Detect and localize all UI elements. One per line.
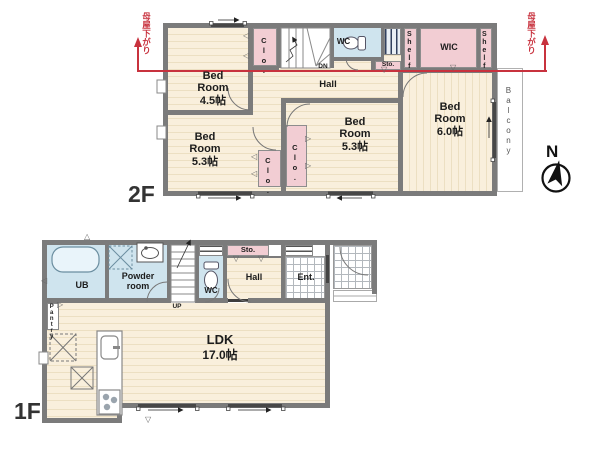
- f1-wall-nook-right: [117, 403, 122, 423]
- f1-wall-left: [42, 240, 47, 423]
- bedroom-b-name: Bed Room: [189, 131, 220, 155]
- f2-wall-right: [492, 23, 497, 196]
- bedroom-b-size: 5.3帖: [192, 156, 218, 168]
- bedroom-a-size: 4.5帖: [200, 95, 226, 107]
- f1-wall: [167, 245, 171, 302]
- roof-note-right: 母屋下がり: [527, 12, 536, 55]
- f2-wall: [398, 71, 403, 191]
- shelf-right-label: Shelf: [480, 31, 488, 71]
- floor-plan: Balcony Bed Room 4.5帖 Bed Room 5.3帖 Bed …: [0, 0, 600, 453]
- porch-wall-right: [372, 240, 377, 294]
- f2-wall: [277, 28, 281, 68]
- f1-wall: [105, 245, 109, 302]
- ldk-name: LDK: [207, 332, 234, 347]
- f1-wall-nook-bottom: [42, 418, 122, 423]
- clo-mid-label: Clo.: [290, 143, 298, 183]
- sliding-door-hall-ldk: [228, 299, 248, 302]
- door-flap-icon: ◁: [251, 170, 257, 178]
- door-flap-icon: ▽: [258, 255, 264, 263]
- f2-wall-bottom: [163, 191, 497, 196]
- door-flap-icon: ◁: [251, 153, 257, 161]
- porch-wall-top: [330, 240, 377, 245]
- roof-note-left: 母屋下がり: [142, 12, 151, 55]
- compass-north-label: N: [546, 142, 558, 161]
- door-flap-icon: ▽: [381, 66, 387, 74]
- staircase-1f: [171, 241, 195, 302]
- door-flap-icon: ◁: [41, 277, 47, 285]
- balcony-label: Balcony: [503, 86, 512, 156]
- vent-icon: △: [84, 233, 90, 241]
- f2-wall: [281, 98, 403, 103]
- floor2-label: 2F: [128, 182, 155, 208]
- door-flap-icon: ▽: [233, 255, 239, 263]
- shelf-above-entrance: [285, 245, 313, 256]
- roof-slope-arrow-left-head: [134, 37, 142, 47]
- roof-slope-arrow-left-shaft: [137, 46, 139, 71]
- bedroom-d-size: 6.0帖: [437, 126, 463, 138]
- ub-label: UB: [70, 280, 94, 290]
- ldk-flooring-nook: [47, 403, 117, 418]
- up-label: UP: [167, 303, 187, 310]
- ldk-label: LDK 17.0帖: [190, 333, 250, 362]
- f1-wall: [248, 298, 330, 303]
- bedroom-c-label: Bed Room 5.3帖: [331, 116, 379, 153]
- door-flap-icon: ◁: [243, 52, 249, 60]
- bedroom-d-name: Bed Room: [434, 101, 465, 125]
- bath-ub-room: [47, 245, 105, 302]
- f1-wall: [195, 298, 228, 303]
- door-flap-icon: ▽: [450, 64, 456, 72]
- sto-2f-label: Sto.: [376, 61, 400, 68]
- powder-room-label: Powder room: [115, 271, 161, 291]
- wc-2f-label: WC: [335, 38, 352, 47]
- bedroom-b-label: Bed Room 5.3帖: [181, 131, 229, 168]
- wc-1f-label: WC: [202, 287, 220, 296]
- bedroom-a-label: Bed Room 4.5帖: [189, 70, 237, 107]
- dn-label: DN: [313, 63, 333, 70]
- porch-tile: [333, 245, 372, 289]
- compass-icon: [543, 159, 570, 192]
- door-flap-icon: ▷: [57, 301, 63, 309]
- door-flap-icon: ▽: [145, 416, 151, 424]
- f1-wall-bottom: [117, 403, 330, 408]
- ldk-size: 17.0帖: [202, 348, 237, 362]
- clo-top-label: Clo.: [259, 36, 267, 76]
- shelf-striped-2f: [384, 28, 401, 55]
- roof-slope-arrow-right-shaft: [544, 44, 546, 71]
- f1-wall-right: [325, 240, 330, 408]
- shelf-left-label: Shelf: [405, 31, 413, 71]
- f2-wall: [163, 110, 253, 115]
- bedroom-d-label: Bed Room 6.0帖: [424, 101, 476, 138]
- bedroom-a-name: Bed Room: [197, 70, 228, 94]
- bedroom-c-name: Bed Room: [339, 116, 370, 140]
- hall-1f-label: Hall: [239, 272, 269, 282]
- floor1-label: 1F: [14, 399, 41, 425]
- clo-left-label: Clo.: [263, 156, 271, 196]
- shelf-above-wc: [199, 245, 223, 256]
- hall-2f-label: Hall: [308, 80, 348, 91]
- door-flap-icon: ▷: [305, 135, 311, 143]
- porch-step: [333, 290, 377, 302]
- wic-label: WIC: [433, 42, 465, 52]
- roof-slope-arrow-right-head: [541, 35, 549, 45]
- bedroom-c-size: 5.3帖: [342, 141, 368, 153]
- door-flap-icon: ◁: [243, 32, 249, 40]
- door-flap-icon: ▷: [305, 162, 311, 170]
- ldk-flooring: [47, 303, 325, 403]
- entrance-label: Ent.: [292, 272, 320, 282]
- pantry-label: Pantry: [48, 304, 55, 340]
